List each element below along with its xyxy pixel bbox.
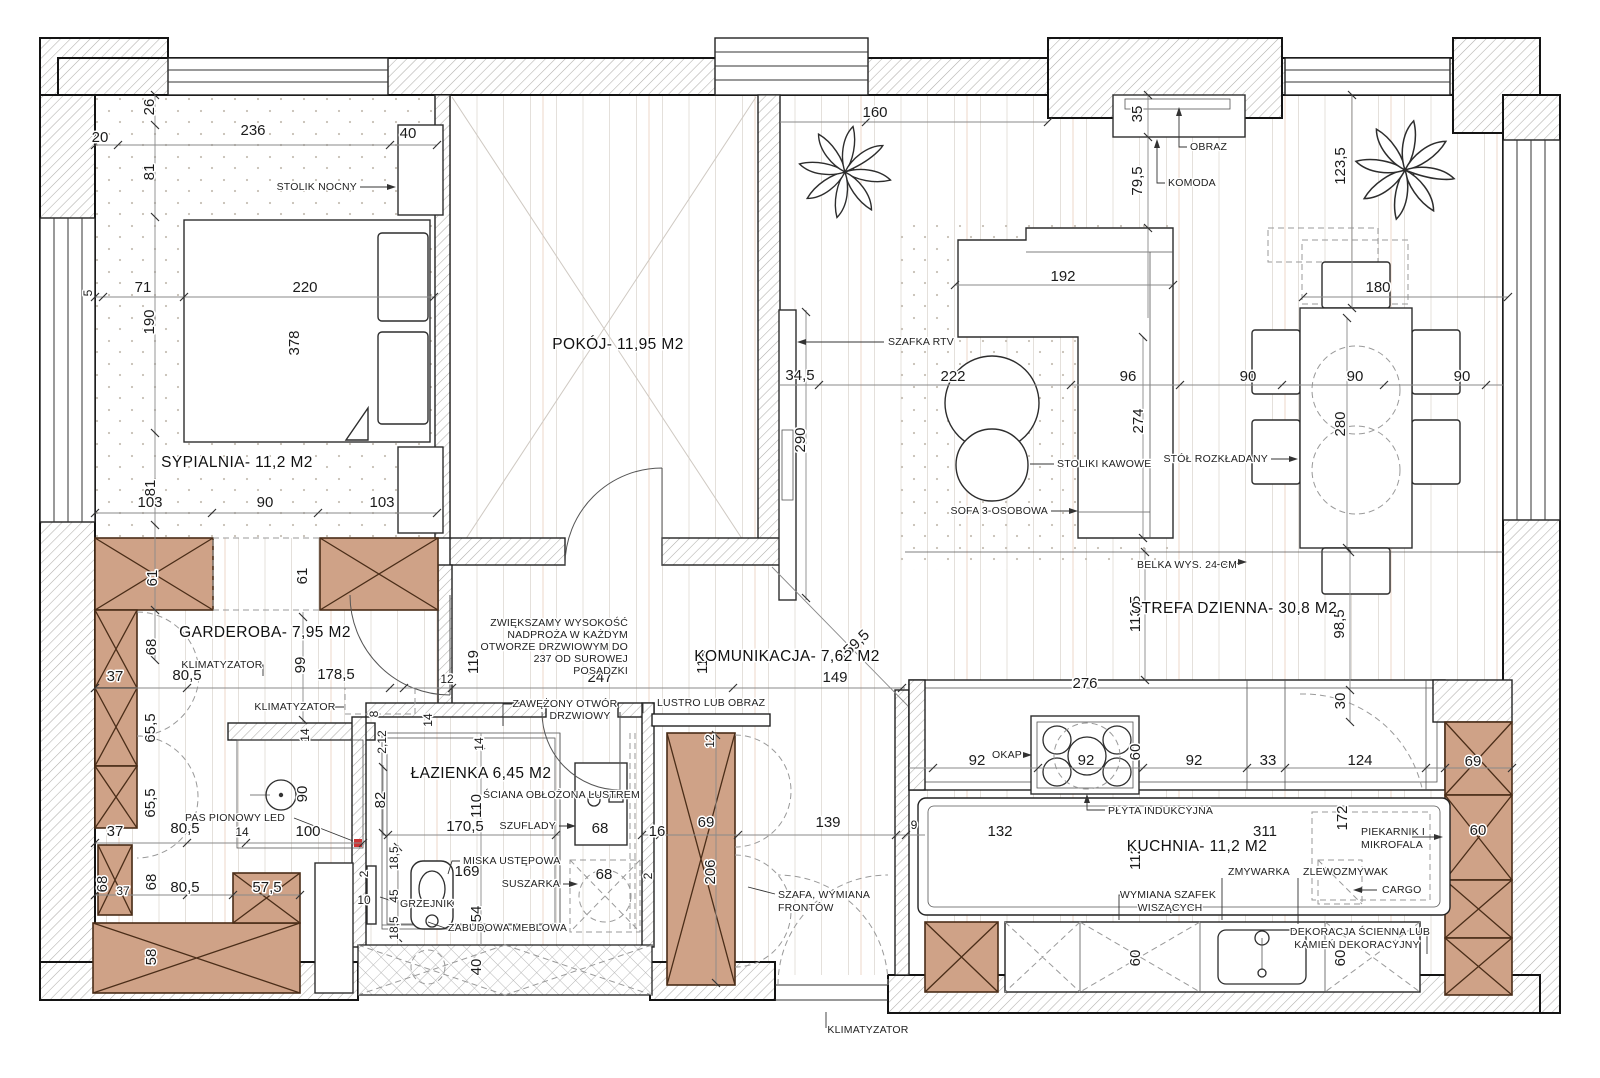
dim-label: 68 bbox=[94, 876, 111, 893]
room-label-komunikacja: KOMUNIKACJA- 7,62 M2 bbox=[694, 648, 879, 665]
annotation: ZLEWOZMYWAK bbox=[1303, 866, 1388, 878]
dim-label: 280 bbox=[1332, 411, 1349, 436]
dim-label: 68 bbox=[592, 820, 609, 837]
dim-label: 10 bbox=[357, 893, 371, 907]
dim-label: 190 bbox=[141, 309, 158, 334]
dim-label: 81 bbox=[141, 164, 158, 181]
dim-label: 35 bbox=[1129, 106, 1146, 123]
annotation: ZABUDOWA MEBLOWA bbox=[448, 922, 567, 934]
dim-label: 14 bbox=[472, 737, 486, 751]
wall-pokoj-bottom-left bbox=[450, 538, 565, 565]
dim-label: 79,5 bbox=[1129, 166, 1146, 195]
annotation: ZMYWARKA bbox=[1228, 866, 1290, 878]
dim-label: 90 bbox=[294, 786, 311, 803]
note-line: OTWORZE DRZWIOWYM DO bbox=[481, 641, 628, 653]
dim-label: 58 bbox=[143, 949, 160, 966]
annotation: ZAWĘŻONY OTWÓR bbox=[513, 697, 618, 710]
annotation: STOLIKI KAWOWE bbox=[1057, 458, 1151, 470]
annotation: STÓŁ ROZKŁADANY bbox=[1163, 452, 1268, 465]
dim-label: 123,5 bbox=[1332, 147, 1349, 185]
annotation: SZUFLADY bbox=[500, 820, 556, 832]
dim-label: 69 bbox=[1465, 753, 1482, 770]
dim-label: 92 bbox=[1186, 752, 1203, 769]
wall-corridor-kitchen bbox=[895, 690, 909, 975]
dim-label: 90 bbox=[1240, 368, 1257, 385]
dim-label: 40 bbox=[400, 125, 417, 142]
dim-label: 149 bbox=[822, 669, 847, 686]
annotation: FRONTÓW bbox=[778, 901, 834, 914]
dim-label: 2 bbox=[641, 872, 655, 879]
annotation: PAS PIONOWY LED bbox=[185, 812, 285, 824]
room-label-garderoba: GARDEROBA- 7,95 M2 bbox=[179, 624, 351, 641]
annotation: GRZEJNIK bbox=[400, 898, 454, 910]
annotation: MIKROFALA bbox=[1361, 839, 1423, 851]
dim-label: 14 bbox=[235, 825, 249, 839]
dim-label: 12 bbox=[440, 672, 454, 686]
note-line: NADPROŻA W KAŻDYM bbox=[507, 628, 628, 641]
window-left-bedroom bbox=[40, 218, 95, 522]
dim-label: 90 bbox=[1454, 368, 1471, 385]
note-line: 237 OD SUROWEJ bbox=[534, 653, 628, 665]
tall-panel bbox=[315, 863, 353, 993]
annotation: KLIMATYZATOR bbox=[827, 1024, 908, 1036]
annotation: DEKORACJA ŚCIENNA LUB bbox=[1290, 925, 1430, 938]
room-label-lazienka: ŁAZIENKA 6,45 M2 bbox=[411, 765, 552, 782]
annotation: DRZWIOWY bbox=[549, 710, 610, 722]
chair bbox=[1252, 420, 1300, 484]
dim-label: 18,5 bbox=[387, 916, 401, 940]
dim-label: 68 bbox=[143, 874, 160, 891]
dim-label: 180 bbox=[1365, 279, 1390, 296]
annotation: KOMODA bbox=[1168, 177, 1216, 189]
dim-label: 45 bbox=[387, 889, 401, 903]
dim-label: 236 bbox=[240, 122, 265, 139]
shower-zone bbox=[358, 945, 652, 995]
annotation: SUSZARKA bbox=[502, 878, 560, 890]
dim-label: 99 bbox=[292, 657, 309, 674]
annotation: LUSTRO LUB OBRAZ bbox=[657, 697, 766, 709]
toilet bbox=[411, 861, 453, 929]
note-line: POSADZKI bbox=[573, 665, 628, 677]
annotation: KLIMATYZATOR bbox=[254, 701, 335, 713]
dim-label: 34,5 bbox=[785, 367, 814, 384]
dim-label: 26 bbox=[141, 99, 158, 116]
dim-label: 60 bbox=[1127, 950, 1144, 967]
note-line: ZWIĘKSZAMY WYSOKOŚĆ bbox=[490, 616, 628, 629]
annotation: SZAFKA RTV bbox=[888, 336, 954, 348]
dim-label: 61 bbox=[294, 568, 311, 585]
dim-label: 274 bbox=[1130, 408, 1147, 433]
dim-label: 172 bbox=[1334, 805, 1351, 830]
dim-label: 103 bbox=[369, 494, 394, 511]
dim-label: 90 bbox=[257, 494, 274, 511]
dim-label: 100 bbox=[295, 823, 320, 840]
dim-label: 124 bbox=[1347, 752, 1372, 769]
dim-label: 68 bbox=[596, 866, 613, 883]
room-label-pokoj: POKÓJ- 11,95 M2 bbox=[552, 336, 683, 353]
dim-label: 30 bbox=[1332, 693, 1349, 710]
chair bbox=[1412, 420, 1460, 484]
nightstand bbox=[398, 447, 443, 533]
floor-plan-svg: 20 236 40 26 81 5 71 220 190 378 81 103 … bbox=[0, 0, 1600, 1078]
dim-label: 68 bbox=[143, 639, 160, 656]
kitchen-counter bbox=[909, 680, 1445, 790]
dim-label: 60 bbox=[1127, 744, 1144, 761]
dim-label: 206 bbox=[702, 859, 719, 884]
annotation: STOLIK NOCNY bbox=[277, 181, 357, 193]
dim-label: 276 bbox=[1072, 675, 1097, 692]
dim-label: 37 bbox=[107, 823, 124, 840]
dim-label: 222 bbox=[940, 368, 965, 385]
wall-bathroom-left bbox=[352, 717, 366, 947]
dim-label: 139 bbox=[815, 814, 840, 831]
dim-label: 90 bbox=[1347, 368, 1364, 385]
dim-label: 61 bbox=[144, 570, 161, 587]
dim-label: 54 bbox=[468, 906, 485, 923]
annotation: CARGO bbox=[1382, 884, 1422, 896]
dim-label: 92 bbox=[969, 752, 986, 769]
chair bbox=[1322, 548, 1390, 594]
dim-label: 103 bbox=[137, 494, 162, 511]
dim-label: 290 bbox=[792, 427, 809, 452]
dim-label: 71 bbox=[135, 279, 152, 296]
dim-label: 60 bbox=[1470, 822, 1487, 839]
coffee-table bbox=[956, 429, 1028, 501]
wall-pokoj-strefa bbox=[758, 95, 780, 560]
room-label-strefa: STREFA DZIENNA- 30,8 M2 bbox=[1131, 600, 1337, 617]
room-label-kuchnia: KUCHNIA- 11,2 M2 bbox=[1127, 838, 1267, 855]
dim-label: 60 bbox=[1332, 950, 1349, 967]
dim-label: 96 bbox=[1120, 368, 1137, 385]
dim-label: 18,5 bbox=[387, 846, 401, 870]
floor-plan: 20 236 40 26 81 5 71 220 190 378 81 103 … bbox=[0, 0, 1600, 1078]
dim-label: 14 bbox=[298, 728, 312, 742]
dim-label: 8 bbox=[367, 710, 381, 717]
dim-label: 192 bbox=[1050, 268, 1075, 285]
dim-label: 170,5 bbox=[446, 818, 484, 835]
dim-label: 178,5 bbox=[317, 666, 355, 683]
dim-label: 37 bbox=[116, 884, 130, 898]
annotation: KAMIEŃ DEKORACYJNY bbox=[1294, 938, 1420, 951]
annotation: MISKA USTĘPOWA bbox=[463, 855, 561, 867]
balcony-door-bottom bbox=[775, 985, 888, 1000]
dim-label: 2,12 bbox=[375, 730, 389, 754]
dim-label: 33 bbox=[1260, 752, 1277, 769]
dim-label: 119 bbox=[465, 650, 482, 674]
annotation: ŚCIANA OBŁOŻONA LUSTREM bbox=[483, 788, 640, 801]
dim-label: 37 bbox=[107, 668, 124, 685]
annotation: SOFA 3-OSOBOWA bbox=[950, 505, 1048, 517]
mirror-shelf bbox=[652, 714, 770, 726]
dim-label: 65,5 bbox=[142, 788, 159, 817]
annotation: KLIMATYZATOR bbox=[181, 659, 262, 671]
chair bbox=[1252, 330, 1300, 394]
dim-label: 160 bbox=[862, 104, 887, 121]
dim-label: 57,5 bbox=[252, 879, 281, 896]
wall-pokoj-bottom-right bbox=[662, 538, 780, 565]
dim-label: 132 bbox=[987, 823, 1012, 840]
annotation: PŁYTA INDUKCYJNA bbox=[1108, 805, 1213, 817]
annotation: OBRAZ bbox=[1190, 141, 1228, 153]
dim-label: 9 bbox=[911, 818, 918, 832]
balcony-door-top bbox=[715, 38, 868, 95]
annotation: PIEKARNIK I bbox=[1361, 826, 1425, 838]
dining-table bbox=[1300, 308, 1412, 548]
dim-label: 16 bbox=[649, 823, 666, 840]
dim-label: 82 bbox=[372, 792, 389, 809]
window-top-bedroom bbox=[168, 58, 388, 95]
annotation: WYMIANA SZAFEK bbox=[1120, 889, 1216, 901]
dim-label: 65,5 bbox=[142, 713, 159, 742]
dim-label: 92 bbox=[1078, 752, 1095, 769]
dim-label: 14 bbox=[421, 713, 435, 727]
dim-label: 378 bbox=[286, 330, 303, 355]
pillow bbox=[378, 332, 428, 424]
rtv-cabinet bbox=[779, 310, 796, 600]
dim-label: 12 bbox=[703, 734, 717, 748]
window-top-dining bbox=[1285, 58, 1450, 95]
annotation: SZAFA, WYMIANA bbox=[778, 889, 870, 901]
dim-label: 220 bbox=[292, 279, 317, 296]
dim-label: 20 bbox=[92, 129, 109, 146]
dim-label: 69 bbox=[698, 814, 715, 831]
annotation: BELKA WYS. 24 CM bbox=[1137, 559, 1237, 571]
annotation: WISZĄCYCH bbox=[1138, 902, 1203, 914]
dim-label: 80,5 bbox=[170, 879, 199, 896]
dim-label: 40 bbox=[468, 959, 485, 976]
pillow bbox=[378, 233, 428, 321]
room-label-sypialnia: SYPIALNIA- 11,2 M2 bbox=[161, 454, 313, 471]
dim-label: 2 bbox=[357, 870, 371, 877]
annotation: OKAP bbox=[992, 749, 1022, 761]
dim-label: 5 bbox=[81, 289, 95, 296]
window-right bbox=[1503, 140, 1560, 520]
